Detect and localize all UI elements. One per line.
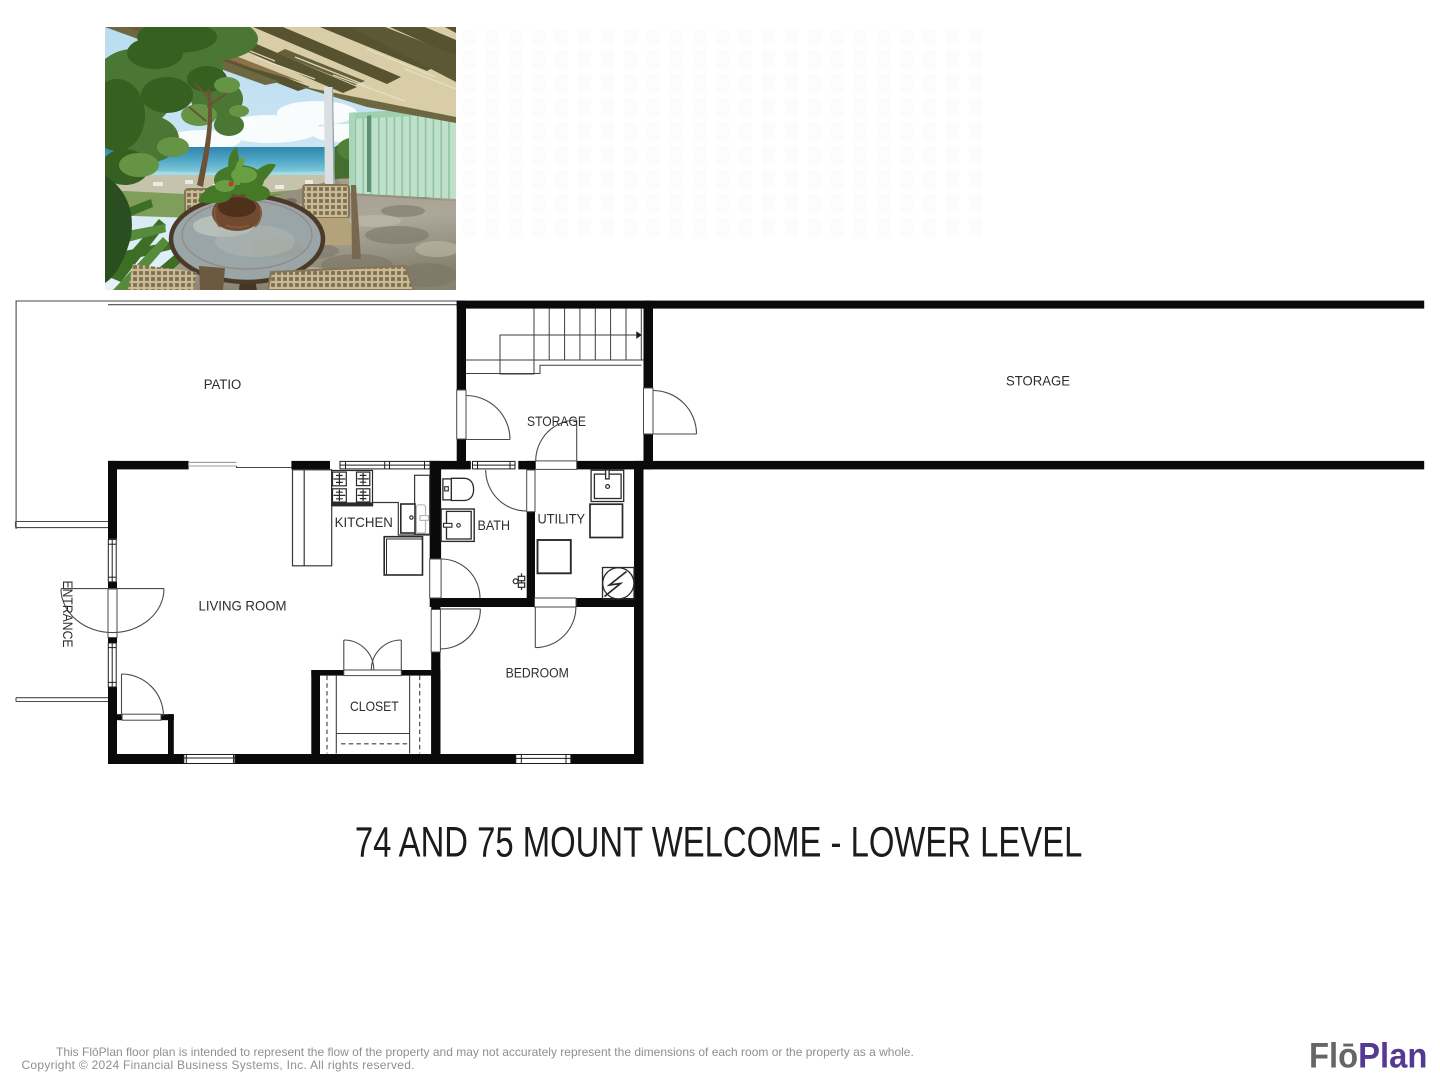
svg-text:FlōPlan: FlōPlan — [1309, 1036, 1427, 1075]
svg-text:BEDROOM: BEDROOM — [506, 665, 569, 681]
svg-text:ENTRANCE: ENTRANCE — [60, 580, 76, 647]
svg-text:KITCHEN: KITCHEN — [335, 515, 393, 530]
svg-text:Copyright © 2024 Financial Bus: Copyright © 2024 Financial Business Syst… — [22, 1058, 415, 1072]
svg-text:STORAGE: STORAGE — [1006, 373, 1070, 388]
svg-text:STORAGE: STORAGE — [527, 413, 586, 429]
svg-text:This FlōPlan floor plan is int: This FlōPlan floor plan is intended to r… — [56, 1045, 914, 1059]
svg-text:BATH: BATH — [478, 518, 511, 534]
svg-text:UTILITY: UTILITY — [538, 511, 586, 526]
svg-text:LIVING ROOM: LIVING ROOM — [199, 598, 287, 613]
svg-text:CLOSET: CLOSET — [350, 699, 399, 715]
svg-text:PATIO: PATIO — [204, 377, 242, 392]
svg-text:74 AND 75 MOUNT WELCOME - LOWE: 74 AND 75 MOUNT WELCOME - LOWER LEVEL — [355, 820, 1083, 867]
